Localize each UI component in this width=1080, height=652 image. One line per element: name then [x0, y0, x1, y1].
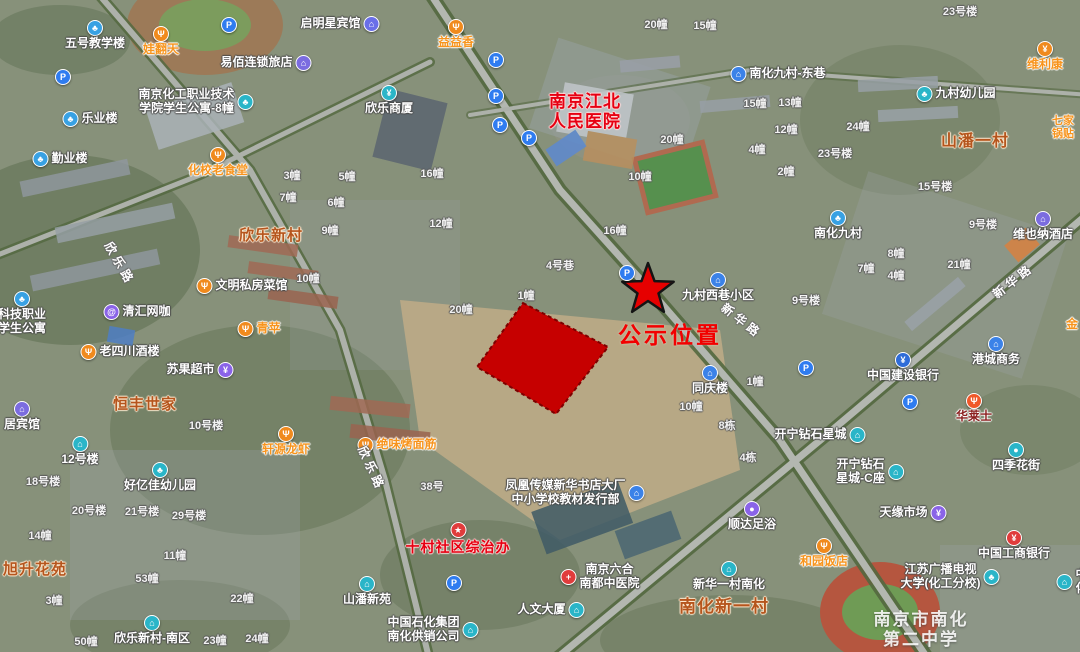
parking-icon: P — [492, 117, 508, 133]
map-poi-label[interactable]: ♣科技职业学生公寓 — [0, 291, 46, 336]
building-number-label: 4幢 — [887, 267, 904, 283]
map-poi-label[interactable]: ⌂欣乐新村-南区 — [114, 615, 190, 646]
building-number-label: 20号楼 — [72, 502, 106, 518]
map-poi-label[interactable]: 旭升花苑 — [3, 561, 67, 578]
building-number-label: 4栋 — [739, 449, 756, 465]
map-poi-label[interactable]: 欣乐新村 — [239, 227, 303, 244]
map-poi-label[interactable]: +南京六合南都中医院 — [560, 563, 639, 591]
map-poi-label[interactable]: ¥欣乐商厦 — [365, 85, 413, 116]
poi-text: 欣乐新村 — [239, 227, 303, 244]
community-icon: ⌂ — [710, 272, 726, 288]
map-poi-label[interactable]: ⌂居宾馆 — [4, 401, 40, 432]
parking-icon-wrap[interactable]: P — [798, 360, 814, 376]
restaurant-icon: Ψ — [80, 344, 96, 360]
school-icon: ♣ — [984, 569, 1000, 585]
building-number-label: 38号 — [420, 478, 443, 494]
poi-text: 九村幼儿园 — [935, 87, 995, 101]
parking-icon: P — [798, 360, 814, 376]
poi-text: 七家锅贴 — [1052, 115, 1074, 140]
map-poi-label[interactable]: ⌂维也纳酒店 — [1013, 211, 1073, 242]
building-number-label: 4号巷 — [546, 257, 574, 273]
building-number-label: 2幢 — [777, 163, 794, 179]
poi-text: 清汇网咖 — [122, 305, 170, 319]
map-poi-label[interactable]: 开宁钻石星城⌂ — [774, 427, 865, 443]
shopping-icon: ¥ — [1037, 41, 1053, 57]
building-number-label: 3幢 — [45, 592, 62, 608]
map-poi-label[interactable]: Ψ益益香 — [438, 19, 474, 50]
building-number-label: 20幢 — [660, 131, 683, 147]
poi-text: 12号楼 — [61, 453, 98, 467]
map-poi-label[interactable]: @清汇网咖 — [103, 304, 170, 320]
map-poi-label[interactable]: ⌂同庆楼 — [692, 365, 728, 396]
map-poi-label[interactable]: 苏果超市¥ — [166, 362, 233, 378]
building-icon: ⌂ — [702, 365, 718, 381]
map-poi-label[interactable]: Ψ化校老食堂 — [188, 147, 248, 178]
building-number-label: 9幢 — [321, 222, 338, 238]
building-number-label: 21号楼 — [125, 503, 159, 519]
poi-text: 公示位置 — [618, 322, 722, 348]
poi-text: 和园饭店 — [800, 555, 848, 569]
campus-building-icon: ♣ — [62, 111, 78, 127]
poi-text: 中国石化集团南化供销公司 — [387, 616, 459, 644]
map-poi-label[interactable]: ●顺达足浴 — [728, 501, 776, 532]
poi-text: 江苏广播电视大学(化工分校) — [901, 563, 981, 591]
map-poi-label[interactable]: ¥维利康 — [1027, 41, 1063, 72]
map-poi-label[interactable]: ⌂山潘新苑 — [343, 576, 391, 607]
restaurant-icon: Ψ — [196, 278, 212, 294]
shopping-icon: ¥ — [381, 85, 397, 101]
poi-text: 山潘新苑 — [343, 593, 391, 607]
building-number-label: 53幢 — [135, 570, 158, 586]
map-poi-label[interactable]: 七家锅贴 — [1052, 115, 1074, 140]
notice-label[interactable]: 公示位置 — [618, 322, 722, 348]
poi-text: 南化九村-东巷 — [750, 67, 826, 81]
parking-icon: P — [619, 265, 635, 281]
map-poi-label[interactable]: Ψ青苹 — [237, 321, 280, 337]
poi-text: 天缘市场 — [879, 506, 927, 520]
building-number-label: 1幢 — [517, 287, 534, 303]
poi-text: 启明星宾馆 — [300, 17, 360, 31]
poi-text: 欣乐商厦 — [365, 102, 413, 116]
parking-icon-wrap[interactable]: P — [446, 575, 462, 591]
parking-icon: P — [55, 69, 71, 85]
poi-text: 科技职业学生公寓 — [0, 308, 46, 336]
internet-cafe-icon: @ — [103, 304, 119, 320]
poi-text: 南京六合南都中医院 — [579, 563, 639, 591]
map-poi-label[interactable]: ⌂九村西巷小区 — [682, 272, 754, 303]
map-poi-label[interactable]: ¥中国工商银行 — [978, 530, 1050, 561]
map-poi-label[interactable]: 江苏广播电视大学(化工分校)♣ — [901, 563, 1000, 591]
building-number-label: 10幢 — [679, 398, 702, 414]
building-number-label: 24幢 — [846, 118, 869, 134]
map-poi-label[interactable]: ●四季花街 — [992, 442, 1040, 473]
market-icon: ¥ — [931, 505, 947, 521]
poi-text: 青苹 — [256, 322, 280, 336]
poi-text: 轩源龙虾 — [262, 443, 310, 457]
parking-icon-wrap[interactable]: P — [221, 17, 237, 33]
building-number-label: 7幢 — [857, 260, 874, 276]
residence-icon: ⌂ — [144, 615, 160, 631]
building-number-label: 15号楼 — [918, 178, 952, 194]
kindergarten-icon: ♣ — [916, 86, 932, 102]
building-icon: ⌂ — [569, 602, 585, 618]
poi-text: 金 — [1066, 318, 1078, 332]
map-poi-label[interactable]: ♣九村幼儿园 — [916, 86, 995, 102]
map-poi-label[interactable]: 人文大厦⌂ — [517, 602, 584, 618]
residence-icon: ⌂ — [888, 464, 904, 480]
map-poi-label[interactable]: ★十村社区综治办 — [406, 522, 511, 555]
map-poi-label[interactable]: Ψ华莱士 — [956, 393, 992, 424]
parking-icon: P — [446, 575, 462, 591]
poi-text: 勤业楼 — [51, 152, 87, 166]
building-number-label: 7幢 — [279, 189, 296, 205]
government-star-icon: ★ — [450, 522, 466, 538]
parking-icon-wrap[interactable]: P — [488, 88, 504, 104]
poi-text: 维利康 — [1027, 58, 1063, 72]
restaurant-icon: Ψ — [278, 426, 294, 442]
residence-icon: ⌂ — [721, 561, 737, 577]
restaurant-icon: Ψ — [816, 538, 832, 554]
community-icon: ⌂ — [731, 66, 747, 82]
map-poi-label[interactable]: 南化新一村 — [679, 597, 769, 617]
residence-icon: ⌂ — [359, 576, 375, 592]
hospital-icon: + — [560, 569, 576, 585]
poi-text: 乐业楼 — [81, 112, 117, 126]
building-number-label: 29号楼 — [172, 507, 206, 523]
building-number-label: 22幢 — [230, 590, 253, 606]
poi-text: 南京化工职业技术学院学生公寓-8幢 — [138, 88, 234, 116]
parking-icon: P — [902, 394, 918, 410]
map-poi-label[interactable]: 开宁钻石星城-C座⌂ — [836, 458, 904, 486]
bank-icon: ¥ — [895, 352, 911, 368]
map-poi-label[interactable]: ♣南化九村 — [814, 210, 862, 241]
campus-building-icon: ♣ — [87, 20, 103, 36]
poi-text: 旭升花苑 — [3, 561, 67, 578]
building-number-label: 14幢 — [28, 527, 51, 543]
bank-icon: ¥ — [1006, 530, 1022, 546]
building-number-label: 23号楼 — [943, 3, 977, 19]
poi-text: 中化 — [1075, 568, 1080, 596]
map-poi-label[interactable]: 中国石化集团南化供销公司⌂ — [387, 616, 478, 644]
map-poi-label[interactable]: Ψ娃翻天 — [143, 26, 179, 57]
poi-text: 山潘一村 — [941, 133, 1009, 151]
parking-icon-wrap[interactable]: P — [492, 117, 508, 133]
map-poi-label[interactable]: Ψ老四川酒楼 — [80, 344, 159, 360]
poi-text: 开宁钻石星城-C座 — [836, 458, 885, 486]
map-poi-label[interactable]: 凤凰传媒新华书店大厂中小学校教材发行部⌂ — [505, 479, 644, 507]
company-icon: ⌂ — [463, 622, 479, 638]
building-number-label: 11幢 — [164, 547, 187, 563]
poi-text: 中国建设银行 — [867, 369, 939, 383]
parking-icon-wrap[interactable]: P — [619, 265, 635, 281]
map-poi-label[interactable]: ♣勤业楼 — [32, 151, 87, 167]
poi-text: 南化新一村 — [679, 597, 769, 617]
poi-text: 益益香 — [438, 36, 474, 50]
poi-text: 华莱士 — [956, 410, 992, 424]
building-number-label: 15幢 — [743, 95, 766, 111]
building-number-label: 12幢 — [429, 215, 452, 231]
building-number-label: 10幢 — [296, 270, 319, 286]
poi-text: 十村社区综治办 — [406, 539, 511, 555]
place-icon: ⌂ — [1056, 574, 1072, 590]
foot-massage-icon: ● — [744, 501, 760, 517]
building-number-label: 4幢 — [748, 141, 765, 157]
residence-icon: ⌂ — [850, 427, 866, 443]
hotel-icon: ⌂ — [296, 55, 312, 71]
poi-text: 凤凰传媒新华书店大厂中小学校教材发行部 — [505, 479, 625, 507]
building-number-label: 8栋 — [718, 417, 735, 433]
map-poi-label[interactable]: ¥中国建设银行 — [867, 352, 939, 383]
campus-building-icon: ♣ — [14, 291, 30, 307]
building-number-label: 20幢 — [644, 16, 667, 32]
building-number-label: 23号楼 — [818, 145, 852, 161]
building-number-label: 9号楼 — [792, 292, 820, 308]
restaurant-icon: Ψ — [237, 321, 253, 337]
poi-text: 化校老食堂 — [188, 164, 248, 178]
parking-icon: P — [488, 52, 504, 68]
supermarket-icon: ¥ — [218, 362, 234, 378]
building-number-label: 1幢 — [746, 373, 763, 389]
road-name-label: 欣乐路 — [101, 238, 140, 288]
building-number-label: 6幢 — [327, 194, 344, 210]
satellite-map[interactable]: ♣五号教学楼Ψ娃翻天易佰连锁旅店⌂南京化工职业技术学院学生公寓-8幢♣Ψ化校老食… — [0, 0, 1080, 652]
restaurant-icon: Ψ — [210, 147, 226, 163]
poi-text: 南京江北人民医院 — [549, 92, 621, 131]
poi-text: 文明私房菜馆 — [215, 279, 287, 293]
building-number-label: 15幢 — [693, 17, 716, 33]
map-poi-label[interactable]: ⌂12号楼 — [61, 436, 98, 467]
poi-text: 娃翻天 — [143, 43, 179, 57]
poi-text: 绝味烤面筋 — [376, 438, 436, 452]
hotel-icon: ⌂ — [1035, 211, 1051, 227]
poi-text: 苏果超市 — [166, 363, 214, 377]
building-number-label: 10号楼 — [189, 417, 223, 433]
map-poi-label[interactable]: 南京化工职业技术学院学生公寓-8幢♣ — [138, 88, 253, 116]
poi-text: 维也纳酒店 — [1013, 228, 1073, 242]
building-number-label: 24幢 — [245, 630, 268, 646]
parking-icon: P — [521, 130, 537, 146]
building-number-label: 3幢 — [283, 167, 300, 183]
poi-text: 欣乐新村-南区 — [114, 632, 190, 646]
poi-text: 南化九村 — [814, 227, 862, 241]
parking-icon-wrap[interactable]: P — [521, 130, 537, 146]
building-icon: ⌂ — [629, 485, 645, 501]
map-labels-layer: ♣五号教学楼Ψ娃翻天易佰连锁旅店⌂南京化工职业技术学院学生公寓-8幢♣Ψ化校老食… — [0, 0, 1080, 652]
poi-text: 好亿佳幼儿园 — [124, 479, 196, 493]
place-icon: ● — [1008, 442, 1024, 458]
map-poi-label[interactable]: 启明星宾馆⌂ — [300, 16, 379, 32]
building-number-label: 20幢 — [449, 301, 472, 317]
poi-text: 居宾馆 — [4, 418, 40, 432]
poi-text: 新华一村南化 — [693, 578, 765, 592]
map-poi-label[interactable]: Ψ文明私房菜馆 — [196, 278, 287, 294]
poi-text: 老四川酒楼 — [99, 345, 159, 359]
building-number-label: 13幢 — [778, 94, 801, 110]
parking-icon-wrap[interactable]: P — [55, 69, 71, 85]
poi-text: 中国工商银行 — [978, 547, 1050, 561]
poi-text: 港城商务 — [972, 353, 1020, 367]
hotel-icon: ⌂ — [364, 16, 380, 32]
poi-text: 四季花街 — [992, 459, 1040, 473]
poi-text: 南京市南化第二中学 — [874, 610, 969, 649]
restaurant-icon: Ψ — [153, 26, 169, 42]
poi-text: 开宁钻石星城 — [774, 428, 846, 442]
map-poi-label[interactable]: 天缘市场¥ — [879, 505, 946, 521]
map-poi-label[interactable]: ⌂港城商务 — [972, 336, 1020, 367]
map-poi-label[interactable]: Ψ轩源龙虾 — [262, 426, 310, 457]
poi-text: 顺达足浴 — [728, 518, 776, 532]
map-poi-label[interactable]: 山潘一村 — [941, 133, 1009, 151]
building-number-label: 18号楼 — [26, 473, 60, 489]
community-icon: ♣ — [830, 210, 846, 226]
building-number-label: 12幢 — [774, 121, 797, 137]
campus-building-icon: ♣ — [238, 94, 254, 110]
building-number-label: 16幢 — [603, 222, 626, 238]
map-poi-label[interactable]: ♣乐业楼 — [62, 111, 117, 127]
building-number-label: 9号楼 — [969, 216, 997, 232]
building-number-label: 23幢 — [203, 632, 226, 648]
kindergarten-icon: ♣ — [152, 462, 168, 478]
building-number-label: 21幢 — [947, 256, 970, 272]
parking-icon-wrap[interactable]: P — [902, 394, 918, 410]
map-poi-label[interactable]: ♣好亿佳幼儿园 — [124, 462, 196, 493]
building-icon: ⌂ — [988, 336, 1004, 352]
building-number-label: 5幢 — [338, 168, 355, 184]
poi-text: 九村西巷小区 — [682, 289, 754, 303]
poi-text: 五号教学楼 — [65, 37, 125, 51]
map-poi-label[interactable]: ⌂中化 — [1056, 568, 1080, 596]
building-number-label: 10幢 — [628, 168, 651, 184]
map-poi-label[interactable]: 南京江北人民医院 — [549, 92, 621, 131]
parking-icon: P — [488, 88, 504, 104]
map-poi-label[interactable]: 南京市南化第二中学 — [874, 610, 969, 649]
restaurant-icon: Ψ — [966, 393, 982, 409]
map-poi-label[interactable]: ⌂南化九村-东巷 — [731, 66, 826, 82]
map-poi-label[interactable]: 易佰连锁旅店⌂ — [220, 55, 311, 71]
poi-text: 恒丰世家 — [113, 396, 177, 413]
building-number-label: 16幢 — [420, 165, 443, 181]
hotel-icon: ⌂ — [14, 401, 30, 417]
road-name-label: 新华路 — [718, 299, 766, 342]
map-poi-label[interactable]: 恒丰世家 — [113, 396, 177, 413]
building-number-label: 8幢 — [887, 245, 904, 261]
poi-text: 同庆楼 — [692, 382, 728, 396]
restaurant-icon: Ψ — [448, 19, 464, 35]
building-icon: ⌂ — [72, 436, 88, 452]
map-poi-label[interactable]: Ψ和园饭店 — [800, 538, 848, 569]
road-name-label: 新华路 — [989, 259, 1037, 302]
poi-text: 人文大厦 — [517, 603, 565, 617]
parking-icon-wrap[interactable]: P — [488, 52, 504, 68]
building-number-label: 50幢 — [74, 633, 97, 649]
parking-icon: P — [221, 17, 237, 33]
map-poi-label[interactable]: ♣五号教学楼 — [65, 20, 125, 51]
poi-text: 易佰连锁旅店 — [220, 56, 292, 70]
map-poi-label[interactable]: ⌂新华一村南化 — [693, 561, 765, 592]
map-poi-label[interactable]: 金 — [1066, 318, 1078, 332]
campus-building-icon: ♣ — [32, 151, 48, 167]
